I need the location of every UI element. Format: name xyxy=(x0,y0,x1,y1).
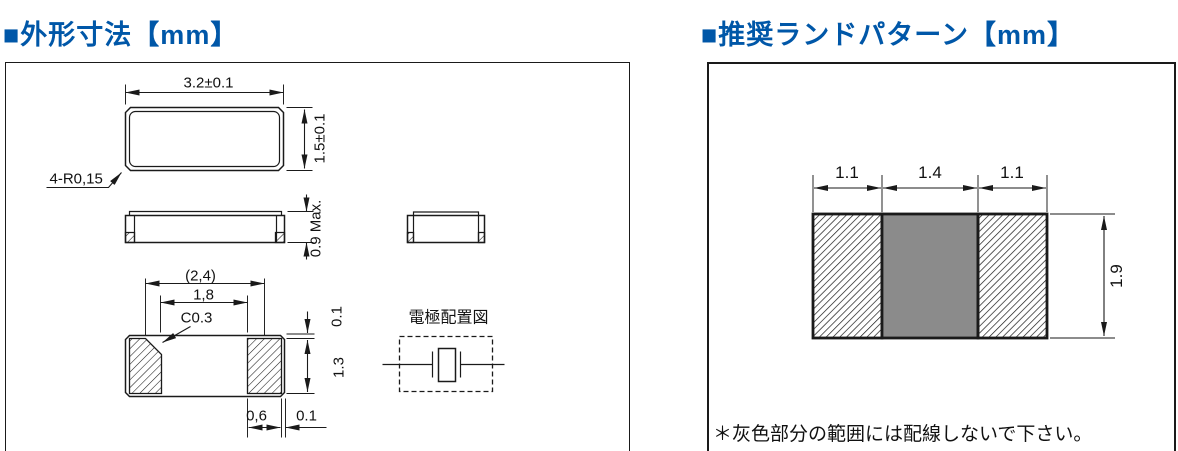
keep-out-zone xyxy=(882,214,978,338)
section-title-land-pattern: ■推奨ランドパターン【mm】 xyxy=(701,13,1075,52)
land-pattern-drawing: 1.1 1.4 1.1 1.9 xyxy=(813,163,1126,338)
dim-center-gap: 1.4 xyxy=(918,163,942,182)
top-view: 3.2±0.1 1.5±0.1 4-R0,15 xyxy=(47,75,329,188)
dim-pad-inner-gap: 1,8 xyxy=(193,287,214,304)
bottom-view: (2,4) 1,8 C0.3 0.1 1.3 0,6 0.1 xyxy=(126,268,348,438)
dim-top-width: 3.2±0.1 xyxy=(184,75,234,92)
land-pattern-panel: 1.1 1.4 1.1 1.9 ＊灰色部分の範囲には配線しないで下さい。 xyxy=(707,62,1176,451)
electrode-diagram-title: 電極配置図 xyxy=(408,309,488,327)
end-view xyxy=(408,212,485,243)
dim-top-margin: 0.1 xyxy=(329,306,346,327)
outline-dimensions-panel: 3.2±0.1 1.5±0.1 4-R0,15 0.9 Max. xyxy=(5,62,630,451)
left-land-pad xyxy=(813,214,882,338)
side-view: 0.9 Max. xyxy=(126,195,325,260)
outline-drawing-svg: 3.2±0.1 1.5±0.1 4-R0,15 0.9 Max. xyxy=(6,63,629,451)
dim-right-pad-width: 1.1 xyxy=(1000,163,1024,182)
section-title-outline-dimensions: ■外形寸法【mm】 xyxy=(3,13,238,52)
keep-out-note: ＊灰色部分の範囲には配線しないで下さい。 xyxy=(713,419,1092,446)
dim-left-pad-width: 1.1 xyxy=(835,163,859,182)
dim-pad-pitch: (2,4) xyxy=(185,268,216,285)
dim-side-height: 0.9 Max. xyxy=(308,200,325,258)
electrode-diagram: 電極配置図 xyxy=(383,309,505,392)
dim-chamfer: C0.3 xyxy=(181,310,213,327)
land-pattern-svg: 1.1 1.4 1.1 1.9 xyxy=(709,64,1174,449)
dim-land-height: 1.9 xyxy=(1107,264,1126,288)
right-land-pad xyxy=(978,214,1047,338)
datasheet-page: { "headers": { "outline_title": "■外形寸法【m… xyxy=(0,0,1178,451)
dim-side-margin: 0.1 xyxy=(296,408,317,425)
dim-corner-radius: 4-R0,15 xyxy=(50,171,103,188)
dim-top-height: 1.5±0.1 xyxy=(312,114,329,164)
dim-pad-length: 1.3 xyxy=(331,357,348,378)
dim-pad-width: 0,6 xyxy=(246,408,267,425)
